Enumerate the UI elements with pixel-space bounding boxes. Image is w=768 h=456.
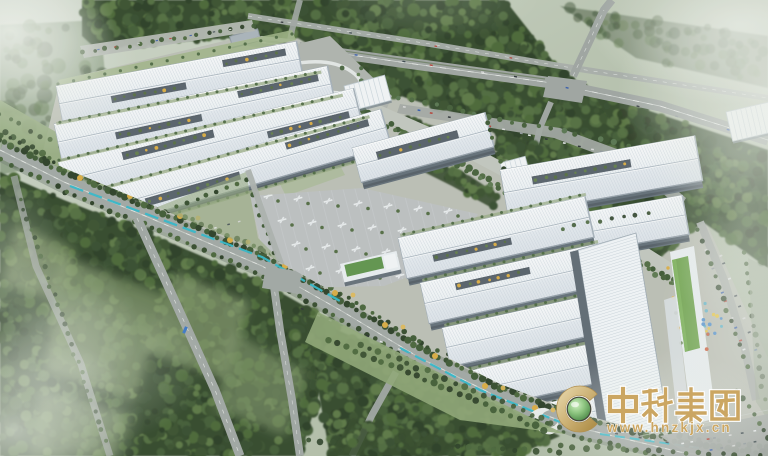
svg-text:www.hnzkjx.cn: www.hnzkjx.cn: [606, 420, 732, 435]
